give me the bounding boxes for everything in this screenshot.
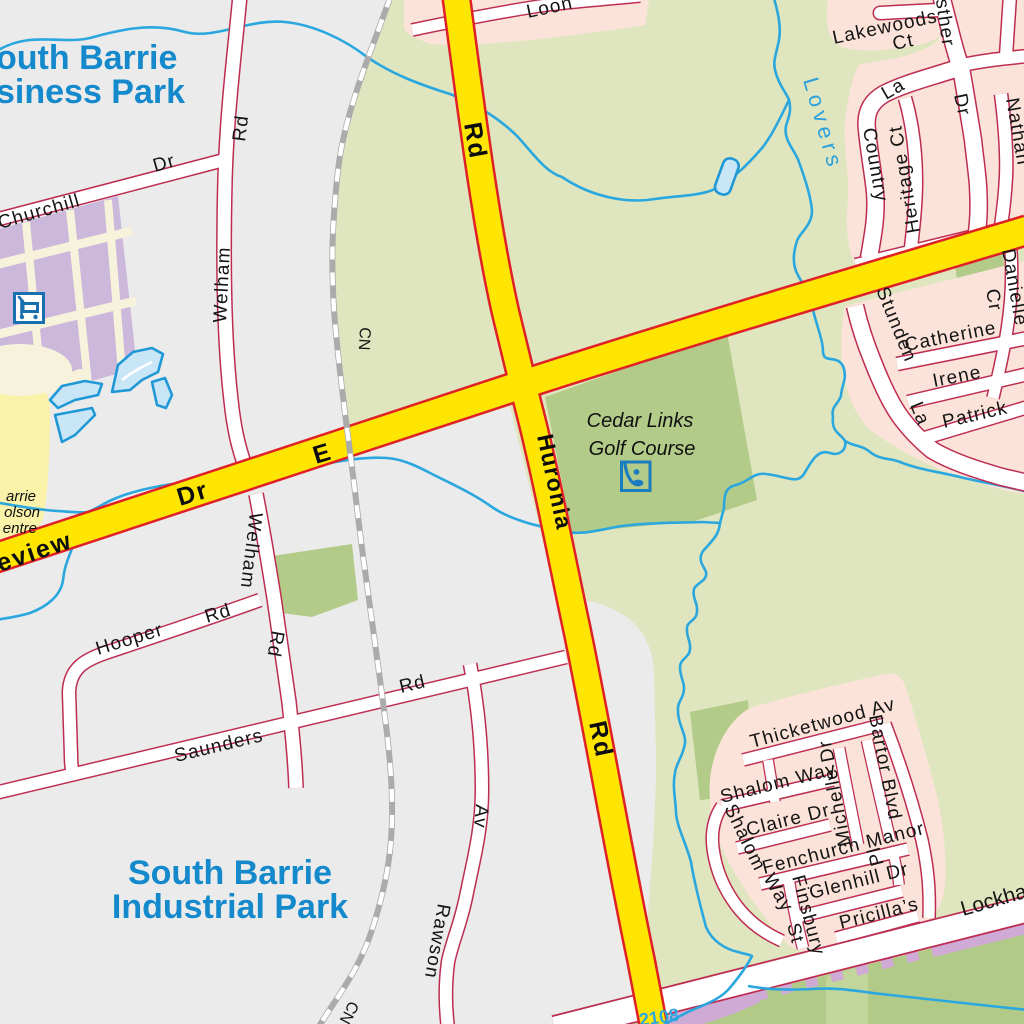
svg-text:outh Barrie: outh Barrie xyxy=(0,39,177,77)
svg-text:entre: entre xyxy=(3,520,37,537)
svg-text:siness Park: siness Park xyxy=(0,73,185,111)
svg-text:olson: olson xyxy=(4,504,40,521)
svg-text:Cr: Cr xyxy=(981,287,1006,313)
svg-text:Av: Av xyxy=(469,804,492,830)
svg-text:Welham: Welham xyxy=(210,246,235,324)
svg-text:arrie: arrie xyxy=(6,488,36,505)
svg-text:Cedar Links: Cedar Links xyxy=(587,410,694,432)
svg-text:Rd: Rd xyxy=(229,114,253,143)
svg-text:CN: CN xyxy=(355,327,373,351)
svg-text:Golf Course: Golf Course xyxy=(589,438,696,460)
svg-text:South Barrie: South Barrie xyxy=(128,854,332,892)
svg-text:Ct: Ct xyxy=(891,30,916,55)
svg-text:Industrial Park: Industrial Park xyxy=(112,888,348,926)
